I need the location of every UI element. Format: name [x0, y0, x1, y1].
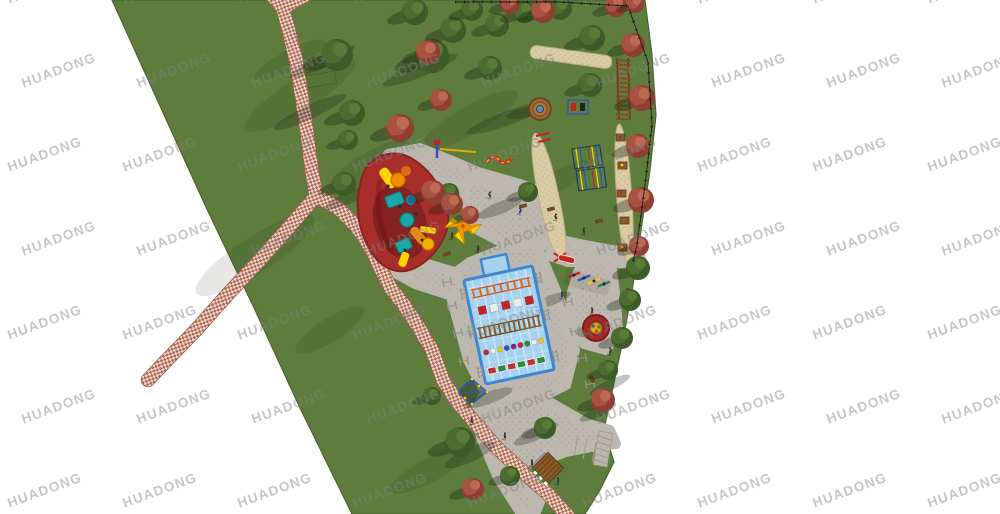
tower-roof [401, 166, 411, 176]
tree-canopy [601, 370, 607, 376]
tree-canopy [341, 174, 352, 185]
tree-canopy [582, 37, 590, 45]
person-head [504, 432, 506, 434]
trail-station-dot [621, 164, 624, 167]
tree-canopy [600, 390, 611, 401]
tree-canopy [444, 203, 451, 210]
tree-canopy [425, 42, 436, 53]
obstacle-float [527, 358, 536, 366]
tree-canopy [449, 441, 458, 450]
post [421, 239, 424, 242]
site-plan-rendering: HUADONGHUADONGHUADONGHUADONGHUADONGHUADO… [0, 0, 1000, 514]
ladder-rung [616, 60, 631, 61]
tree-canopy [469, 1, 479, 11]
tower-roof [391, 173, 405, 187]
tree-canopy [443, 29, 451, 37]
net-node [478, 385, 481, 388]
tree-canopy [342, 112, 350, 120]
trail-station-dot [623, 219, 626, 222]
tree-canopy [629, 267, 636, 274]
tree-canopy [627, 291, 637, 301]
tree-canopy [624, 44, 631, 51]
trail-station-dot [620, 192, 623, 195]
seesaw-pivot [593, 280, 596, 283]
fitness-seat [571, 103, 576, 111]
tree-canopy [631, 199, 639, 207]
tree-canopy [488, 24, 495, 31]
tree-canopy [456, 430, 470, 444]
tree-canopy [433, 99, 440, 106]
tree-canopy [508, 468, 517, 477]
person-head [519, 207, 521, 209]
tree-canopy [463, 215, 468, 220]
obstacle-box [513, 298, 522, 307]
net-node [456, 391, 459, 394]
tree-canopy [464, 9, 471, 16]
obstacle-float [497, 365, 506, 373]
person-head [471, 417, 473, 419]
ladder-rung [616, 92, 631, 93]
tree-canopy [470, 480, 480, 490]
tree-canopy [349, 103, 361, 115]
tree-canopy [635, 258, 646, 269]
tree-canopy [430, 182, 441, 193]
net-node [486, 391, 489, 394]
t-pole-cap [434, 140, 441, 145]
tree-canopy [526, 184, 535, 193]
tree-canopy [405, 11, 413, 19]
ladder-rung [616, 74, 631, 75]
tree-canopy [581, 84, 588, 91]
tree-canopy [325, 54, 335, 64]
tree-canopy [333, 42, 347, 56]
fitness-seat [580, 103, 585, 111]
tree-canopy [614, 337, 621, 344]
seesaw-pivot [583, 277, 586, 280]
tree-canopy [419, 51, 426, 58]
person-head [555, 213, 557, 215]
person-head [477, 245, 479, 247]
tree-canopy [503, 4, 509, 10]
ladder-rung [616, 119, 631, 120]
net-node [471, 378, 474, 381]
tree-canopy [450, 20, 462, 32]
person-head [451, 232, 453, 234]
tree-canopy [341, 140, 347, 146]
post [387, 185, 390, 188]
tower-roof [400, 213, 414, 227]
person-head [489, 191, 491, 193]
tree-canopy [465, 488, 472, 495]
tree-canopy [589, 28, 601, 40]
person-figure [451, 234, 453, 239]
ladder-rung [616, 69, 631, 70]
tree-canopy [346, 132, 355, 141]
post [415, 213, 418, 216]
site-plan-svg [0, 0, 1000, 514]
person-head [561, 291, 563, 293]
ladder-rung [616, 78, 631, 79]
obstacle-box [489, 303, 498, 312]
tree-canopy [412, 2, 424, 14]
tree-canopy [397, 117, 410, 130]
person-figure [561, 293, 563, 298]
ladder-rung [616, 65, 631, 66]
post [404, 249, 407, 252]
tree-canopy [481, 67, 488, 74]
seesaw-pivot [573, 274, 576, 277]
tree-canopy [487, 58, 498, 69]
tree-canopy [594, 399, 601, 406]
person-head [531, 459, 533, 461]
person-head [591, 307, 593, 309]
person-figure [531, 461, 533, 466]
carousel-seat [597, 325, 600, 328]
net-node [471, 403, 474, 406]
spiral-slide [422, 238, 434, 250]
tree-canopy [629, 145, 636, 152]
tree-canopy [639, 88, 651, 100]
tree-canopy [608, 5, 615, 12]
ladder-rung [616, 114, 631, 115]
tree-canopy [619, 329, 629, 339]
net-node [464, 397, 467, 400]
tree-canopy [390, 127, 398, 135]
ladder-rung [616, 83, 631, 84]
carousel-seat [591, 324, 594, 327]
tree-canopy [503, 476, 509, 482]
tree-canopy [534, 10, 541, 17]
tree-canopy [430, 389, 438, 397]
person-head [557, 477, 559, 479]
tree-canopy [622, 299, 629, 306]
ladder-rung [616, 87, 631, 88]
tree-canopy [438, 91, 448, 101]
obstacle-box [501, 300, 510, 309]
person-head [583, 227, 585, 229]
tree-canopy [521, 192, 527, 198]
tree-canopy [468, 208, 476, 216]
obstacle-float [507, 363, 516, 371]
obstacle-float [517, 361, 526, 369]
tree-canopy [632, 97, 640, 105]
tree-canopy [447, 185, 456, 194]
obstacle-box [478, 305, 487, 314]
tree-canopy [606, 362, 615, 371]
tree-canopy [425, 396, 430, 401]
ladder-rung [616, 96, 631, 97]
trail-station-dot [619, 136, 622, 139]
carousel-seat [592, 328, 595, 331]
tree-canopy [449, 195, 459, 205]
obstacle-box [525, 295, 534, 304]
platform-center [537, 106, 544, 113]
obstacle-float [536, 356, 545, 364]
tree-canopy [587, 75, 598, 86]
obstacle-float [488, 367, 497, 375]
seesaw-pivot [603, 283, 606, 286]
tree-canopy [542, 419, 552, 429]
tree-canopy [635, 136, 646, 147]
tree-canopy [424, 191, 431, 198]
post [399, 206, 402, 209]
tree-canopy [335, 183, 342, 190]
tree-canopy [537, 427, 544, 434]
